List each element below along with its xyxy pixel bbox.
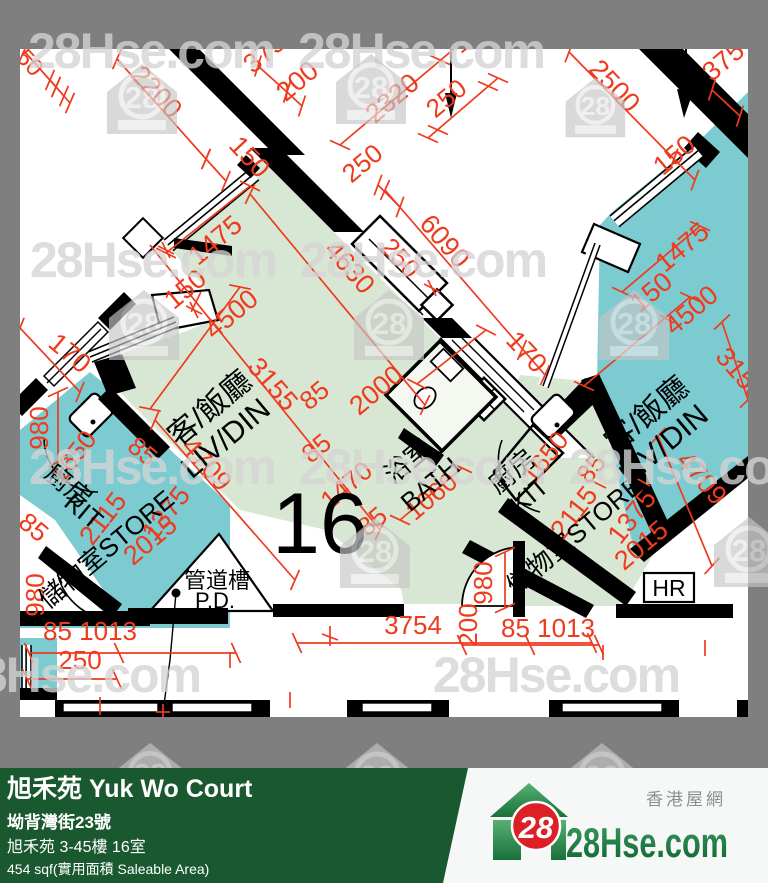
svg-text:28: 28 xyxy=(354,70,388,105)
svg-text:28: 28 xyxy=(518,810,554,845)
svg-text:HR: HR xyxy=(652,575,685,601)
svg-text:28Hse.com: 28Hse.com xyxy=(299,439,545,495)
svg-text:28Hse.com: 28Hse.com xyxy=(28,23,274,79)
svg-text:3754: 3754 xyxy=(384,610,442,640)
svg-text:28: 28 xyxy=(125,80,159,115)
svg-text:P.D.: P.D. xyxy=(195,588,235,613)
svg-text:28: 28 xyxy=(617,306,651,341)
svg-text:28: 28 xyxy=(372,306,406,341)
svg-text:980: 980 xyxy=(468,561,498,604)
svg-text:28Hse.com: 28Hse.com xyxy=(566,819,728,866)
svg-text:香港屋網: 香港屋網 xyxy=(646,790,726,809)
svg-text:28: 28 xyxy=(732,533,766,568)
svg-text:28: 28 xyxy=(581,91,610,121)
svg-text:28Hse.com: 28Hse.com xyxy=(30,232,276,288)
svg-text:旭禾苑 Yuk Wo Court: 旭禾苑 Yuk Wo Court xyxy=(6,775,253,803)
svg-text:28Hse.com: 28Hse.com xyxy=(569,439,768,495)
svg-text:85 1013: 85 1013 xyxy=(43,616,137,646)
svg-text:28: 28 xyxy=(358,534,392,569)
svg-text:85 1013: 85 1013 xyxy=(501,613,595,643)
svg-text:28Hse.com: 28Hse.com xyxy=(433,647,679,703)
svg-text:200: 200 xyxy=(453,603,483,646)
svg-text:454 sqf(實用面積 Saleable Area): 454 sqf(實用面積 Saleable Area) xyxy=(7,861,209,877)
svg-text:28: 28 xyxy=(127,306,161,341)
svg-text:28Hse.com: 28Hse.com xyxy=(29,439,275,495)
svg-text:旭禾苑 3-45樓 16室: 旭禾苑 3-45樓 16室 xyxy=(7,838,146,856)
svg-text:28Hse.com: 28Hse.com xyxy=(300,232,546,288)
svg-text:28Hse.com: 28Hse.com xyxy=(298,23,544,79)
svg-text:28Hse.com: 28Hse.com xyxy=(0,647,200,703)
svg-text:坳背灣街23號: 坳背灣街23號 xyxy=(7,812,111,832)
